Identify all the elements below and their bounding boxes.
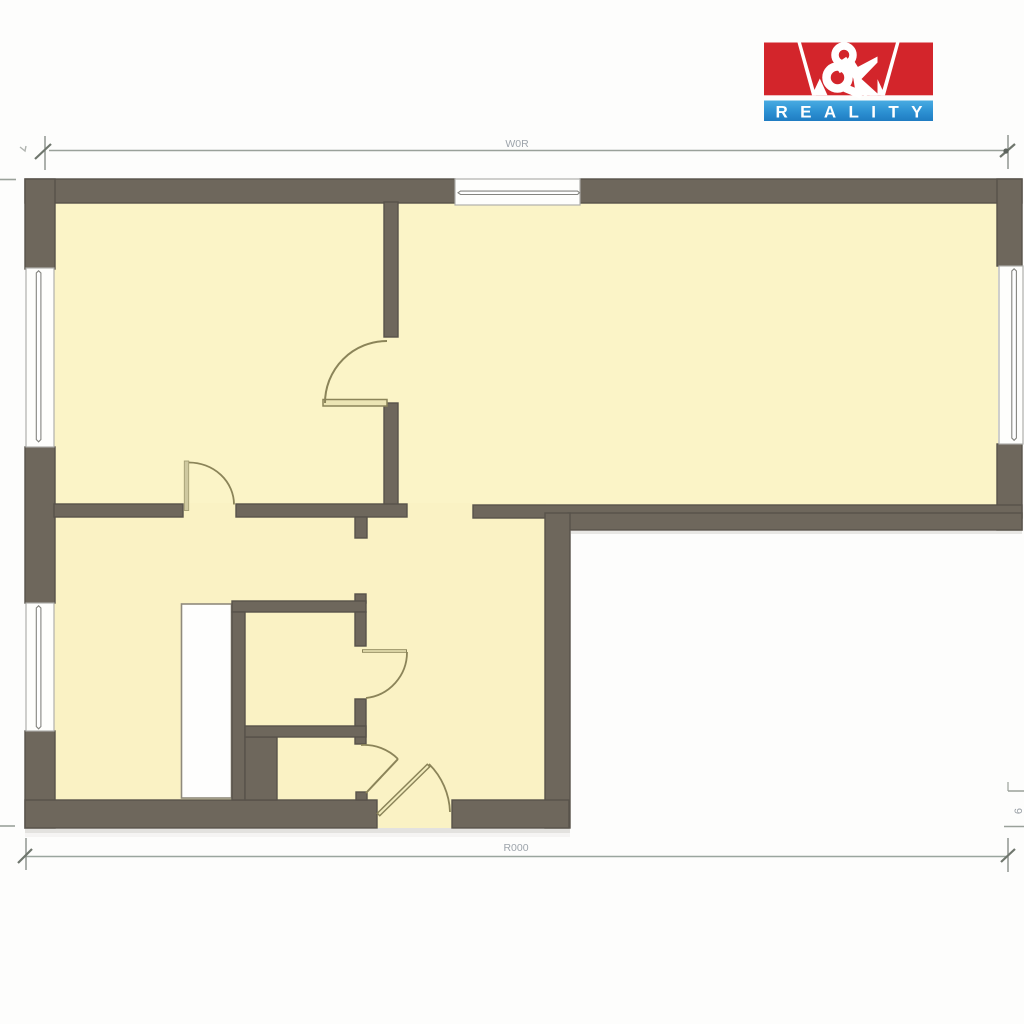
svg-text:6: 6	[1013, 808, 1024, 814]
svg-text:W0R: W0R	[505, 138, 529, 150]
svg-text:R000: R000	[503, 842, 528, 854]
